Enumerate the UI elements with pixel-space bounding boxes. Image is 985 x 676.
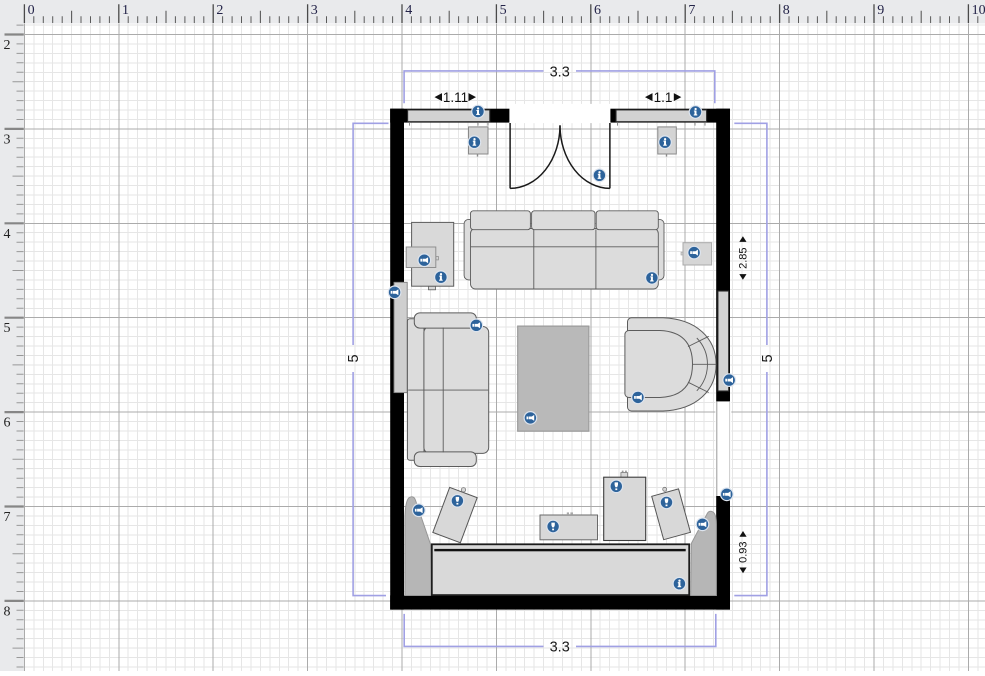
svg-text:8: 8 bbox=[4, 604, 11, 619]
svg-text:1: 1 bbox=[122, 3, 129, 18]
svg-text:0: 0 bbox=[28, 3, 35, 18]
svg-text:9: 9 bbox=[877, 3, 884, 18]
svg-text:7: 7 bbox=[688, 3, 695, 18]
svg-text:4: 4 bbox=[4, 227, 11, 242]
svg-text:2.85: 2.85 bbox=[738, 247, 750, 268]
svg-text:5: 5 bbox=[4, 321, 11, 336]
svg-text:3.3: 3.3 bbox=[550, 64, 570, 80]
svg-text:2: 2 bbox=[4, 38, 11, 53]
svg-text:3: 3 bbox=[4, 132, 11, 147]
svg-text:10: 10 bbox=[972, 3, 985, 18]
svg-text:3.3: 3.3 bbox=[550, 640, 570, 656]
svg-text:6: 6 bbox=[4, 416, 11, 431]
svg-text:5: 5 bbox=[760, 354, 776, 362]
svg-text:2: 2 bbox=[216, 3, 223, 18]
svg-text:3: 3 bbox=[311, 3, 318, 18]
svg-text:4: 4 bbox=[405, 3, 412, 18]
svg-text:8: 8 bbox=[783, 3, 790, 18]
svg-text:1.1: 1.1 bbox=[654, 90, 673, 105]
svg-text:0.93: 0.93 bbox=[738, 541, 750, 562]
svg-text:6: 6 bbox=[594, 3, 601, 18]
svg-text:7: 7 bbox=[4, 510, 11, 525]
svg-text:5: 5 bbox=[500, 3, 507, 18]
svg-text:1.11: 1.11 bbox=[443, 90, 468, 105]
svg-text:5: 5 bbox=[346, 354, 362, 362]
